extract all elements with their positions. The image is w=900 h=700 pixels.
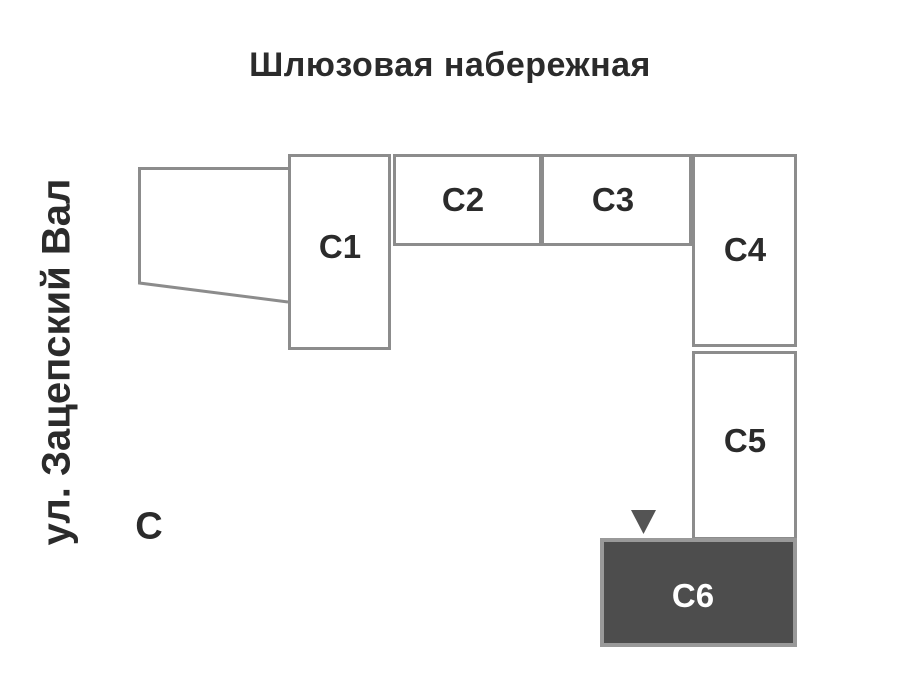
marker-triangle-icon [631,510,656,534]
unlabeled-building-outline [140,169,289,303]
corner-c-label: С [135,506,162,549]
building-c6-shape[interactable] [602,540,795,645]
building-c2-shape[interactable] [395,156,541,245]
site-plan-shapes [0,0,900,700]
building-c4-shape[interactable] [694,156,796,346]
building-c5-shape[interactable] [694,353,796,539]
site-plan-map: Шлюзовая набережная ул. Зацепский Вал С1… [0,0,900,700]
building-c1-shape[interactable] [290,156,390,349]
building-c3-shape[interactable] [543,156,691,245]
